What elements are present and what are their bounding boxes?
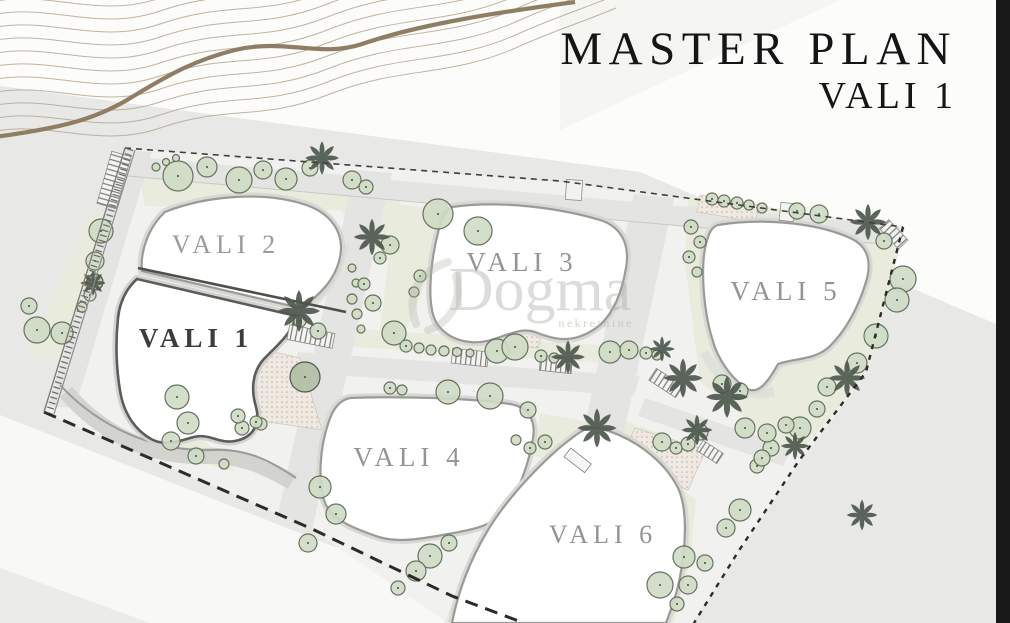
tree-center-dot	[262, 169, 264, 171]
tree-center-dot	[902, 278, 904, 280]
tree-center-dot	[721, 383, 723, 385]
tree-center-dot	[285, 178, 287, 180]
tree-center-dot	[238, 179, 240, 181]
tree-icon	[219, 459, 229, 469]
tree-center-dot	[177, 175, 179, 177]
tree-center-dot	[372, 302, 374, 304]
master-plan-canvas: VALI 2 VALI 1 VALI 3 VALI 4 VALI 5 VALI …	[0, 0, 1010, 623]
tree-center-dot	[448, 542, 450, 544]
tree-center-dot	[514, 346, 516, 348]
tree-center-dot	[544, 441, 546, 443]
tree-center-dot	[529, 447, 531, 449]
tree-center-dot	[365, 186, 367, 188]
tree-center-dot	[683, 556, 685, 558]
tree-center-dot	[883, 240, 885, 242]
tree-icon	[352, 309, 362, 319]
tree-center-dot	[170, 440, 172, 442]
tree-center-dot	[206, 166, 208, 168]
tree-icon	[163, 159, 170, 166]
screen-edge-bar	[996, 0, 1010, 623]
tree-center-dot	[699, 241, 701, 243]
tree-center-dot	[826, 386, 828, 388]
tree-center-dot	[704, 562, 706, 564]
tree-center-dot	[187, 422, 189, 424]
tree-center-dot	[28, 305, 30, 307]
tree-center-dot	[711, 198, 713, 200]
tree-center-dot	[661, 441, 663, 443]
tree-center-dot	[856, 362, 858, 364]
palm-tree-icon	[354, 219, 390, 255]
plot-label-vali-4: VALI 4	[353, 442, 464, 472]
tree-icon	[439, 346, 449, 356]
tree-center-dot	[317, 330, 319, 332]
palm-tree-icon	[847, 500, 878, 531]
tree-center-dot	[540, 355, 542, 357]
tree-icon	[152, 163, 160, 171]
tree-center-dot	[739, 509, 741, 511]
tree-center-dot	[725, 527, 727, 529]
tree-center-dot	[237, 415, 239, 417]
tree-center-dot	[304, 376, 306, 378]
tree-center-dot	[770, 447, 772, 449]
palm-tree-icon	[706, 376, 748, 418]
tree-center-dot	[496, 350, 498, 352]
tree-center-dot	[389, 244, 391, 246]
tree-center-dot	[816, 408, 818, 410]
palm-tree-icon	[781, 432, 809, 460]
tree-center-dot	[335, 513, 337, 515]
tree-center-dot	[437, 213, 439, 215]
tree-center-dot	[489, 395, 491, 397]
tree-icon	[348, 264, 356, 272]
tree-icon	[453, 348, 462, 357]
tree-center-dot	[415, 570, 417, 572]
tree-icon	[511, 435, 521, 445]
tree-center-dot	[307, 542, 309, 544]
plot-label-vali-5: VALI 5	[730, 276, 841, 306]
tree-center-dot	[628, 349, 630, 351]
tree-center-dot	[255, 421, 257, 423]
tree-center-dot	[818, 213, 820, 215]
tree-center-dot	[363, 283, 365, 285]
tree-center-dot	[785, 424, 787, 426]
tree-center-dot	[429, 555, 431, 557]
palm-tree-icon	[682, 415, 713, 446]
master-plan-screenshot: VALI 2 VALI 1 VALI 3 VALI 4 VALI 5 VALI …	[0, 0, 1010, 623]
watermark-tagline: nekretnine	[558, 316, 634, 330]
tree-center-dot	[36, 329, 38, 331]
tree-center-dot	[527, 409, 529, 411]
palm-tree-icon	[278, 290, 320, 332]
tree-icon	[347, 294, 357, 304]
tree-center-dot	[675, 447, 677, 449]
tree-center-dot	[195, 455, 197, 457]
tree-center-dot	[351, 179, 353, 181]
tree-center-dot	[687, 443, 689, 445]
tree-center-dot	[405, 345, 407, 347]
tree-icon	[397, 385, 407, 395]
palm-tree-icon	[663, 358, 702, 397]
tree-center-dot	[393, 332, 395, 334]
tree-center-dot	[687, 584, 689, 586]
tree-center-dot	[688, 256, 690, 258]
tree-center-dot	[397, 587, 399, 589]
tree-center-dot	[61, 332, 63, 334]
palm-tree-icon	[829, 360, 865, 396]
tree-center-dot	[744, 427, 746, 429]
tree-center-dot	[609, 351, 611, 353]
palm-tree-icon	[551, 340, 585, 374]
tree-icon	[744, 200, 754, 210]
tree-center-dot	[319, 486, 321, 488]
page-title: MASTER PLAN	[560, 23, 957, 75]
tree-icon	[692, 267, 702, 277]
tree-center-dot	[690, 226, 692, 228]
plot-label-vali-1: VALI 1	[139, 323, 253, 353]
tree-center-dot	[176, 396, 178, 398]
tree-center-dot	[379, 257, 381, 259]
tree-center-dot	[477, 230, 479, 232]
palm-tree-icon	[305, 141, 339, 175]
tree-icon	[173, 155, 180, 162]
tree-center-dot	[389, 387, 391, 389]
tree-icon	[466, 349, 474, 357]
tree-center-dot	[739, 390, 741, 392]
tree-center-dot	[676, 603, 678, 605]
tree-icon	[426, 345, 436, 355]
palm-tree-icon	[649, 336, 674, 361]
page-subtitle: VALI 1	[819, 75, 957, 117]
plot-label-vali-6: VALI 6	[549, 520, 657, 549]
plot-label-vali-2: VALI 2	[172, 230, 280, 259]
tree-center-dot	[766, 432, 768, 434]
tree-center-dot	[799, 427, 801, 429]
tree-center-dot	[796, 210, 798, 212]
tree-center-dot	[659, 584, 661, 586]
tree-center-dot	[761, 457, 763, 459]
tree-center-dot	[736, 202, 738, 204]
tree-center-dot	[645, 352, 647, 354]
palm-tree-icon	[577, 408, 616, 447]
tree-icon	[357, 325, 365, 333]
tree-center-dot	[241, 427, 243, 429]
tree-center-dot	[723, 200, 725, 202]
tree-icon	[414, 343, 424, 353]
palm-tree-icon	[850, 204, 886, 240]
watermark-brand: Dogma	[449, 256, 632, 324]
tree-center-dot	[447, 391, 449, 393]
tree-center-dot	[896, 299, 898, 301]
